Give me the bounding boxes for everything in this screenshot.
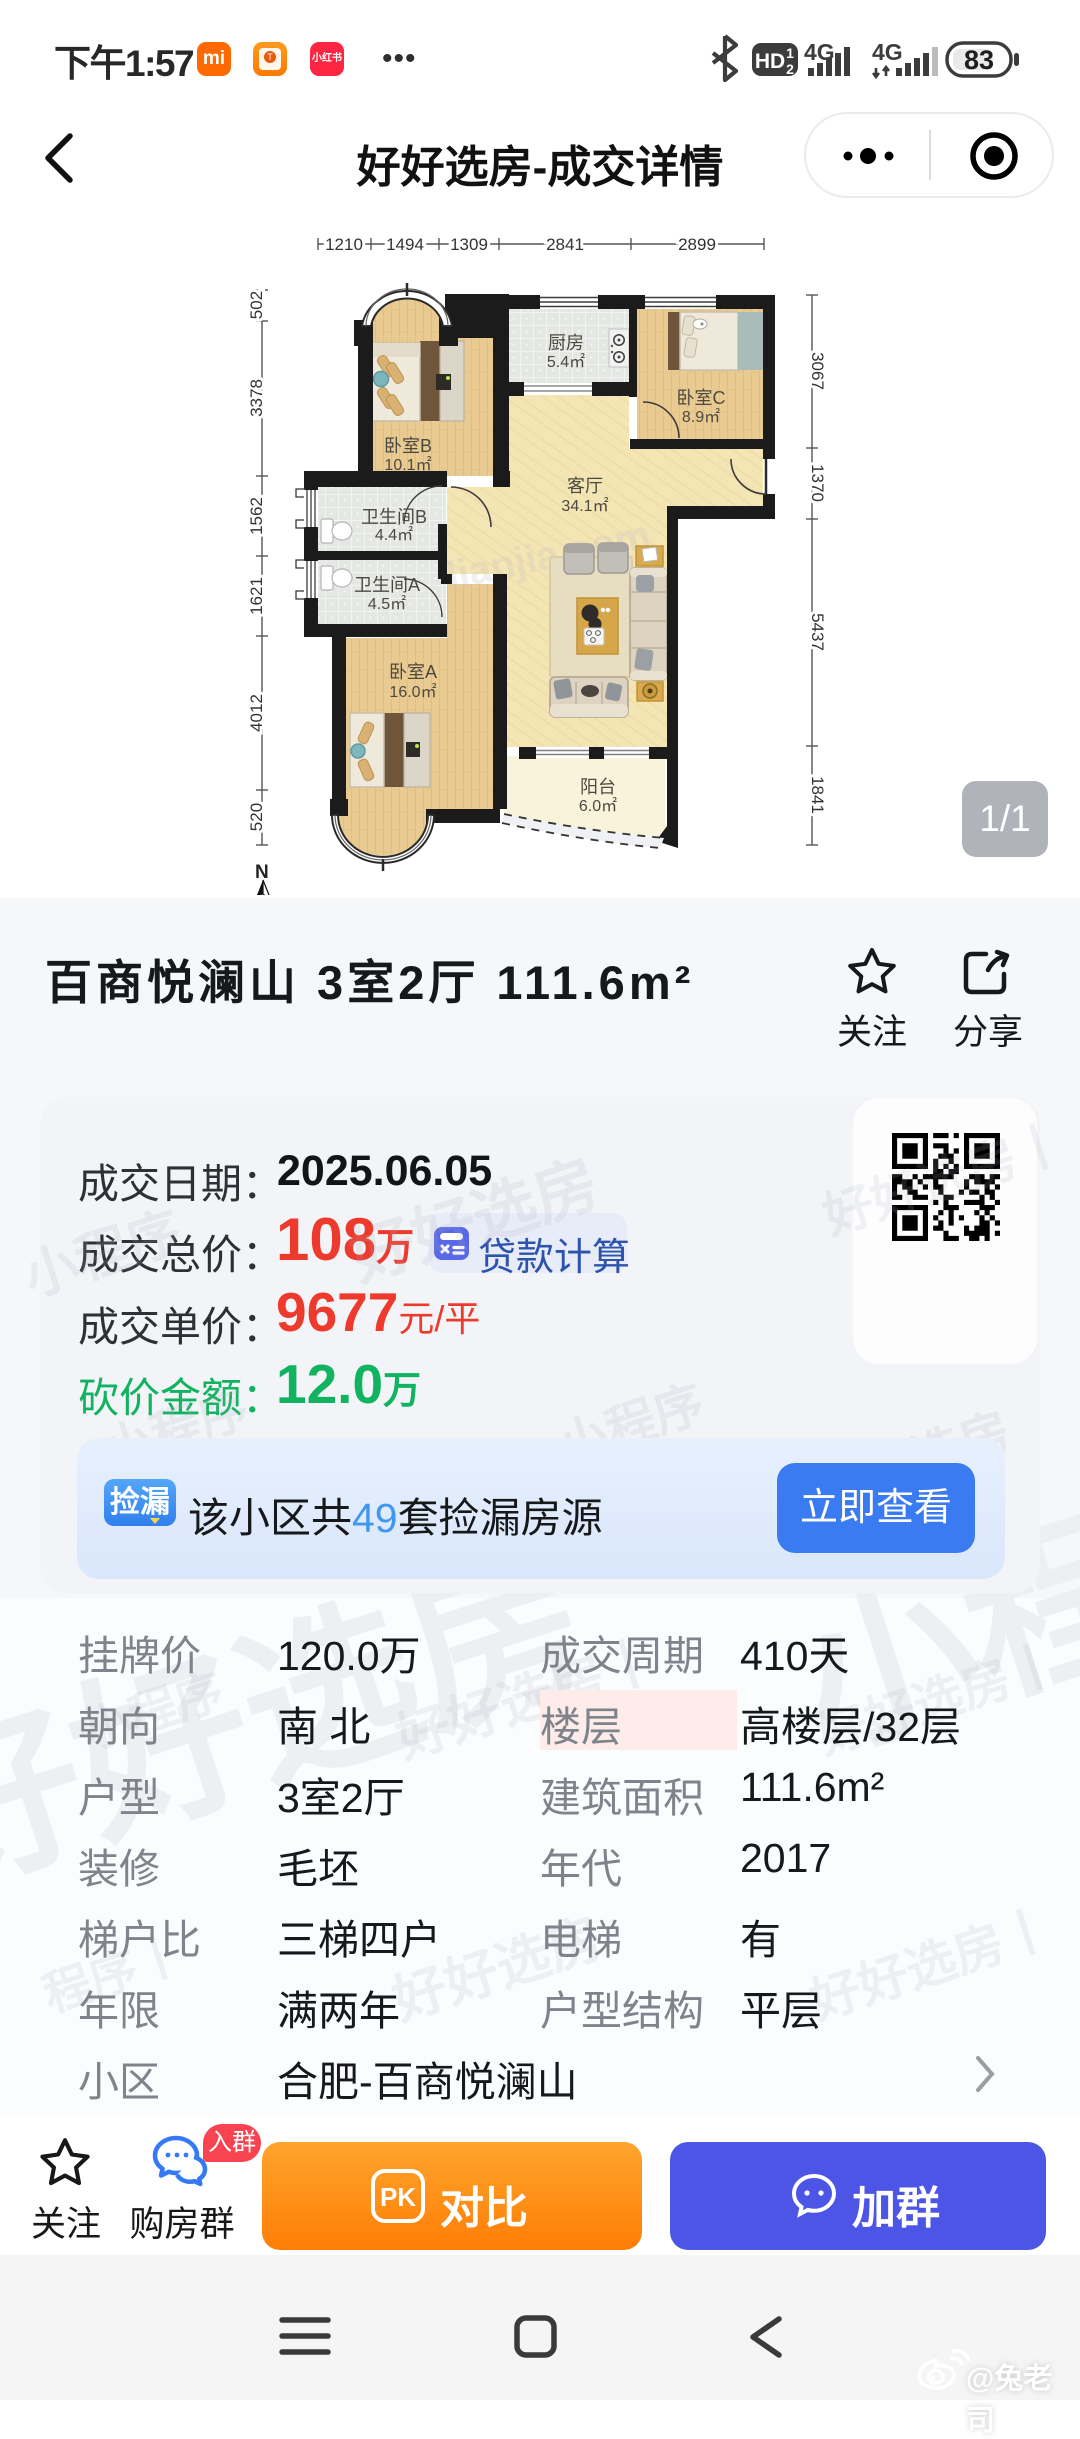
svg-text:1841: 1841 [808, 776, 827, 814]
svg-text:2899: 2899 [678, 235, 716, 254]
svg-text:1621: 1621 [247, 577, 266, 615]
svg-text:卧室C: 卧室C [677, 388, 726, 408]
svg-text:1562: 1562 [247, 497, 266, 535]
svg-text:1: 1 [786, 45, 794, 61]
svg-text:4G: 4G [872, 39, 903, 65]
svg-text:1210: 1210 [325, 235, 363, 254]
svg-text:2841: 2841 [546, 235, 584, 254]
svg-text:卧室A: 卧室A [389, 662, 437, 682]
svg-text:3067: 3067 [808, 352, 827, 390]
svg-text:阳台: 阳台 [580, 777, 616, 797]
svg-text:34.1㎡: 34.1㎡ [561, 497, 608, 515]
svg-text:8.9㎡: 8.9㎡ [682, 408, 720, 426]
svg-text:N: N [255, 862, 269, 883]
svg-text:10.1㎡: 10.1㎡ [384, 456, 431, 474]
svg-text:5437: 5437 [808, 613, 827, 651]
svg-text:卧室B: 卧室B [384, 436, 432, 456]
svg-text:4.4㎡: 4.4㎡ [375, 526, 413, 544]
svg-text:客厅: 客厅 [567, 476, 603, 496]
svg-text:卫生间A: 卫生间A [354, 575, 420, 595]
svg-text:6.0㎡: 6.0㎡ [579, 797, 617, 815]
svg-text:1494: 1494 [386, 235, 424, 254]
svg-text:83: 83 [964, 45, 994, 75]
svg-text:PK: PK [380, 2182, 416, 2212]
svg-text:1309: 1309 [450, 235, 488, 254]
svg-text:1370: 1370 [808, 464, 827, 502]
svg-text:厨房: 厨房 [548, 333, 584, 353]
svg-text:3378: 3378 [247, 379, 266, 417]
svg-text:502: 502 [247, 291, 266, 319]
svg-text:4012: 4012 [247, 694, 266, 732]
svg-text:4.5㎡: 4.5㎡ [368, 595, 406, 613]
svg-text:520: 520 [247, 803, 266, 831]
svg-text:5.4㎡: 5.4㎡ [547, 353, 585, 371]
svg-text:卫生间B: 卫生间B [361, 507, 427, 527]
svg-text:HD: HD [755, 50, 785, 73]
svg-text:2: 2 [786, 61, 794, 77]
svg-text:16.0㎡: 16.0㎡ [389, 683, 436, 701]
